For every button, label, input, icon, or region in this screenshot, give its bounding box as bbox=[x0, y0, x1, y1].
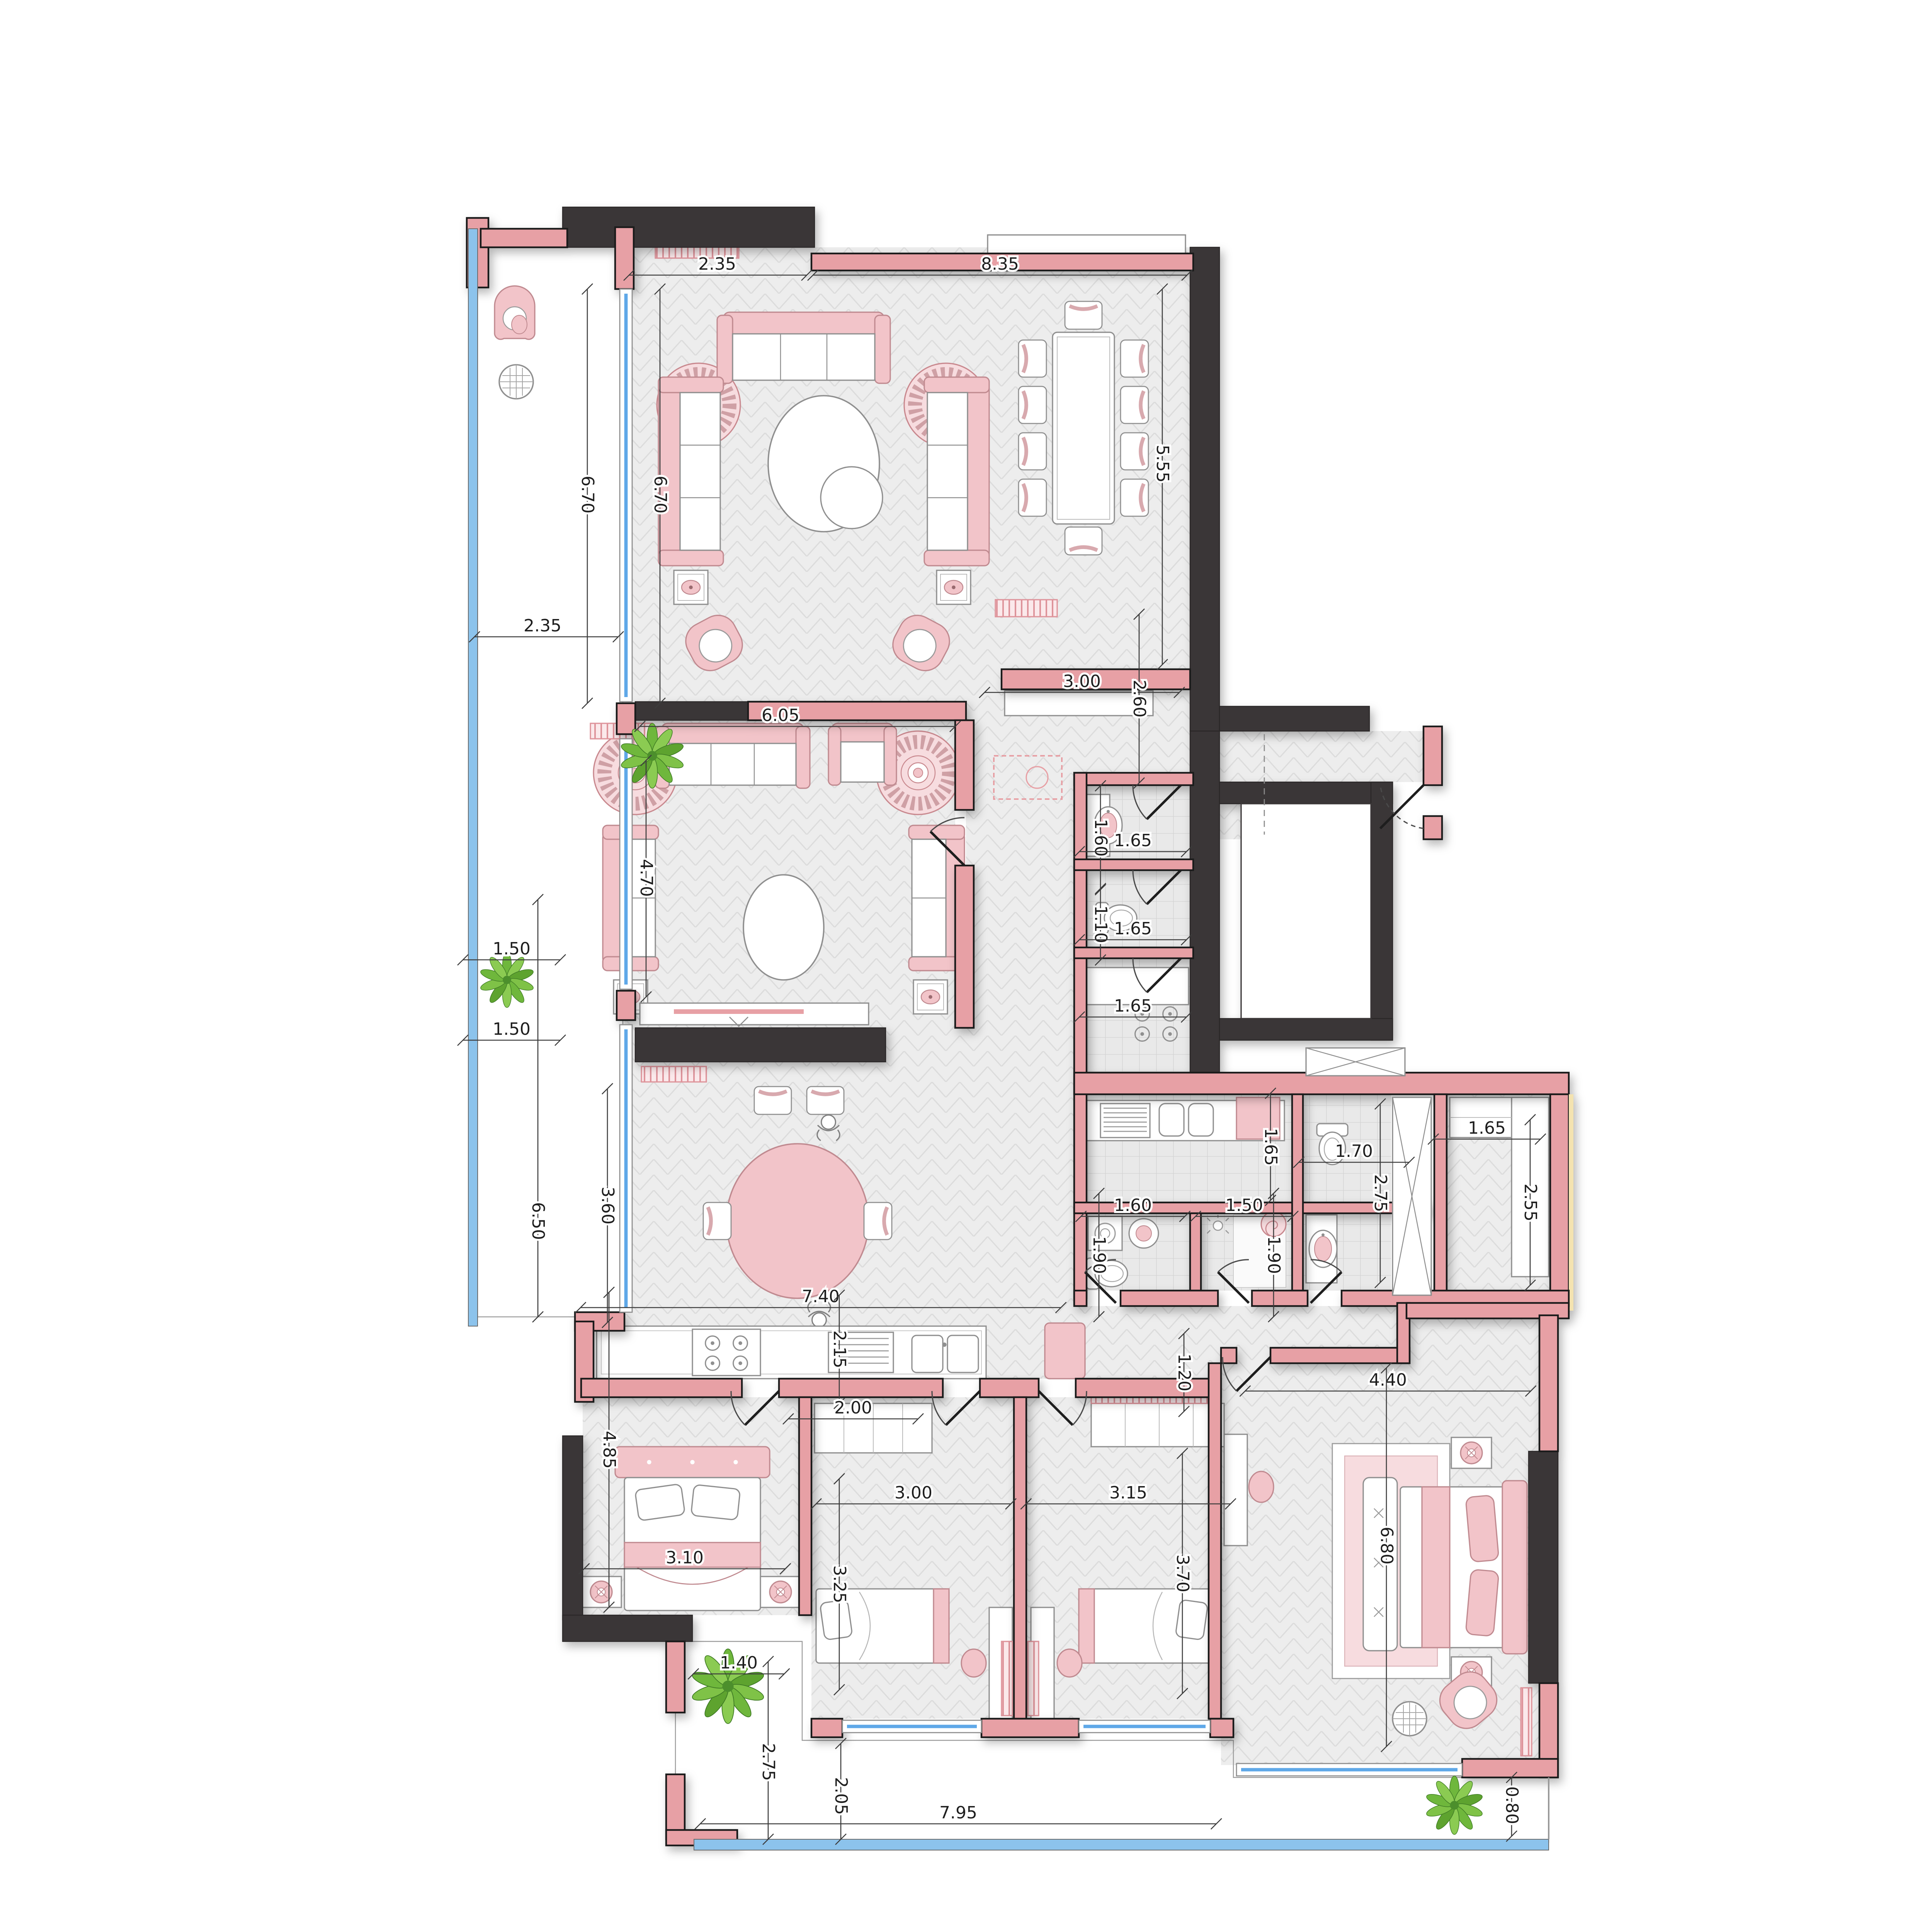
laundry-sink-1 bbox=[1159, 1104, 1184, 1136]
floor-plan: 2.358.356.706.705.552.356.054.703.002.60… bbox=[0, 0, 1932, 1932]
dimension-label: 1.90 bbox=[1264, 1236, 1284, 1274]
duct-shaft-horizontal bbox=[1306, 1048, 1405, 1076]
insulation-strip bbox=[1569, 1094, 1573, 1311]
balcony-lounge-chair bbox=[495, 286, 535, 339]
dimension-label: 1.10 bbox=[1091, 905, 1111, 943]
wall-dark-right-upper bbox=[1190, 247, 1219, 731]
dimension-label: 3.10 bbox=[666, 1548, 704, 1568]
plant bbox=[1425, 1776, 1483, 1834]
radiator-bedroom2-desk bbox=[1002, 1641, 1012, 1716]
dimension-label: 2.35 bbox=[698, 254, 736, 274]
wall-dark-right-lower bbox=[1190, 731, 1219, 1073]
dimension-label: 0.80 bbox=[1502, 1786, 1522, 1824]
second-living-side-table-right bbox=[913, 980, 947, 1014]
kitchen-fridge bbox=[1045, 1323, 1085, 1379]
window-second-living-west[interactable] bbox=[620, 739, 632, 989]
window-living-west[interactable] bbox=[620, 289, 632, 702]
master-nightstand-top bbox=[1451, 1437, 1492, 1468]
dimension-label: 1.60 bbox=[1114, 1196, 1152, 1215]
dimension-label: 1.60 bbox=[1091, 819, 1111, 857]
wall-bedroom2-3-divider bbox=[1014, 1397, 1026, 1719]
dimension-label: 7.95 bbox=[939, 1803, 977, 1823]
master-desk-chair bbox=[1249, 1471, 1274, 1502]
dimension-label: 2.75 bbox=[759, 1743, 778, 1781]
master-bed bbox=[1400, 1481, 1527, 1654]
dimension-label: 1.40 bbox=[720, 1653, 758, 1673]
wall-bedroom1-east bbox=[799, 1397, 811, 1615]
dimension-label: 1.50 bbox=[493, 939, 531, 959]
radiator-hall bbox=[995, 600, 1057, 617]
bedroom2-chair bbox=[961, 1649, 986, 1677]
dimension-label: 1.20 bbox=[1174, 1354, 1194, 1391]
wall-entry-right-lower bbox=[1423, 816, 1442, 839]
wall-bedroom3-master-divider bbox=[1209, 1363, 1221, 1719]
dimension-label: 3.00 bbox=[895, 1483, 932, 1503]
wall-dark-shaft-top bbox=[1219, 782, 1393, 804]
dimension-label: 6.70 bbox=[650, 476, 670, 514]
dimension-label: 4.40 bbox=[1369, 1370, 1407, 1390]
dimension-label: 6.70 bbox=[578, 476, 597, 514]
dimension-label: 3.15 bbox=[1109, 1483, 1147, 1503]
floor-corridor-east bbox=[1406, 1318, 1539, 1363]
wall-dark-bedroom1-west bbox=[563, 1436, 583, 1620]
dimension-label: 1.65 bbox=[1261, 1128, 1281, 1166]
wall-master-north bbox=[1270, 1348, 1410, 1363]
laundry-rack bbox=[1100, 1104, 1150, 1138]
dimension-label: 3.60 bbox=[598, 1187, 617, 1225]
bedroom3-chair bbox=[1057, 1649, 1082, 1677]
dimension-label: 2.60 bbox=[1129, 680, 1149, 718]
dimension-label: 1.90 bbox=[1089, 1236, 1109, 1274]
second-living-armchair bbox=[828, 723, 896, 785]
dimension-label: 3.25 bbox=[830, 1565, 849, 1603]
dimension-label: 4.85 bbox=[599, 1431, 619, 1469]
balcony-side-table bbox=[499, 365, 533, 399]
master-desk bbox=[1224, 1434, 1247, 1546]
dimension-label: 2.35 bbox=[524, 616, 561, 636]
living-coffee-table-small bbox=[821, 467, 883, 529]
bedroom3-wardrobe bbox=[1091, 1403, 1224, 1447]
wall-dark-entry-band bbox=[1219, 706, 1369, 731]
radiator-bedroom3-desk bbox=[1028, 1641, 1039, 1716]
bedroom1-nightstand-left bbox=[581, 1577, 621, 1607]
radiator-dining-nook bbox=[641, 1066, 706, 1082]
elevator-core bbox=[1241, 804, 1371, 1019]
master-side-table bbox=[1393, 1702, 1427, 1736]
wall-dark-shaft-bottom bbox=[1219, 1019, 1393, 1040]
wall-master-east-upper bbox=[1539, 1315, 1558, 1451]
bath2-basin-bowl bbox=[1136, 1226, 1151, 1241]
dimension-label: 2.00 bbox=[834, 1398, 872, 1418]
window-bedroom2-south[interactable] bbox=[842, 1720, 981, 1733]
living-side-table-right bbox=[937, 570, 971, 604]
dimension-label: 1.65 bbox=[1468, 1118, 1506, 1138]
dimension-label: 1.65 bbox=[1114, 831, 1152, 850]
radiator-master bbox=[1521, 1688, 1532, 1756]
window-master-terrace-door[interactable] bbox=[1236, 1764, 1462, 1776]
railing-terrace bbox=[694, 1839, 1549, 1850]
second-living-coffee-table bbox=[743, 875, 824, 980]
tv-console bbox=[640, 1003, 869, 1026]
bedroom1-nightstand-right bbox=[760, 1577, 801, 1607]
wall-east-outer bbox=[1550, 1094, 1569, 1311]
second-living-sofa bbox=[655, 723, 810, 788]
dimension-label: 1.65 bbox=[1114, 919, 1152, 939]
living-sofa-left bbox=[658, 377, 723, 566]
bedroom1-bed bbox=[615, 1447, 770, 1611]
dimension-label: 1.50 bbox=[493, 1019, 531, 1039]
laundry-sink-2 bbox=[1189, 1104, 1213, 1136]
dimension-label: 1.65 bbox=[1114, 996, 1152, 1016]
window-bedroom3-south[interactable] bbox=[1079, 1720, 1210, 1733]
dimension-label: 6.80 bbox=[1377, 1527, 1396, 1565]
wall-dark-master-wardrobe bbox=[1529, 1451, 1558, 1683]
duct-shaft-vertical bbox=[1393, 1097, 1431, 1295]
dimension-label: 1.70 bbox=[1335, 1141, 1373, 1161]
wall-master-south bbox=[1462, 1759, 1558, 1777]
wall-dark-second-living-top bbox=[635, 702, 748, 720]
laundry-counter bbox=[1087, 1097, 1284, 1141]
dimension-label: 2.05 bbox=[831, 1777, 851, 1815]
plant bbox=[480, 952, 535, 1008]
railing-balcony-left bbox=[468, 229, 478, 1326]
dimension-label: 2.55 bbox=[1520, 1184, 1540, 1221]
dimension-label: 8.35 bbox=[981, 254, 1019, 274]
dimension-label: 2.75 bbox=[1371, 1174, 1390, 1212]
dimension-label: 7.40 bbox=[802, 1287, 840, 1306]
dimension-label: 2.15 bbox=[830, 1330, 849, 1368]
wall-entry-right-upper bbox=[1423, 726, 1442, 785]
bedroom3-bed bbox=[1079, 1589, 1212, 1663]
dimension-label: 3.00 bbox=[1063, 672, 1101, 691]
dimension-label: 6.50 bbox=[528, 1202, 548, 1240]
dimension-label: 6.05 bbox=[762, 706, 799, 725]
kitchen-counter bbox=[597, 1326, 986, 1379]
window-dining-nook-west[interactable] bbox=[620, 1025, 632, 1312]
dimension-label: 5.55 bbox=[1153, 445, 1172, 483]
living-sofa-main bbox=[717, 312, 890, 383]
living-side-table-left bbox=[674, 570, 708, 604]
wall-dark-bedroom1-south bbox=[563, 1615, 692, 1641]
wall-dark-top bbox=[563, 207, 815, 247]
dimension-label: 4.70 bbox=[636, 859, 656, 897]
dimension-label: 1.50 bbox=[1225, 1196, 1263, 1215]
dimension-label: 3.70 bbox=[1173, 1554, 1192, 1592]
living-sofa-right bbox=[924, 377, 989, 566]
wall-dark-tv bbox=[635, 1028, 886, 1062]
